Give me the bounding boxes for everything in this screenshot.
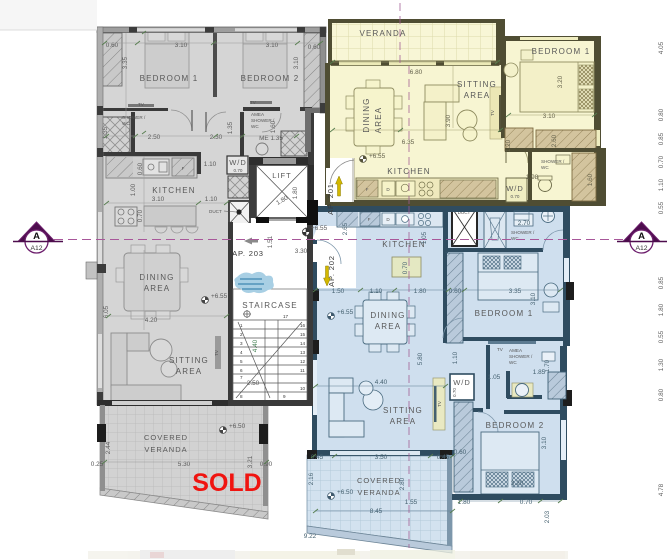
svg-text:1.80: 1.80: [414, 288, 427, 295]
svg-text:AREA: AREA: [374, 107, 383, 134]
svg-text:F: F: [368, 217, 371, 222]
svg-text:0.60: 0.60: [308, 44, 321, 51]
svg-text:TV: TV: [497, 347, 504, 352]
svg-text:KITCHEN: KITCHEN: [382, 240, 426, 249]
svg-text:W/D: W/D: [229, 158, 247, 167]
svg-text:AP. 203: AP. 203: [232, 249, 264, 258]
svg-text:3.10: 3.10: [530, 292, 537, 305]
svg-text:9: 9: [283, 394, 286, 399]
svg-text:WC: WC: [541, 165, 549, 170]
svg-text:3.10: 3.10: [293, 56, 300, 69]
svg-text:12: 12: [300, 359, 306, 364]
svg-text:3.50: 3.50: [375, 454, 388, 461]
svg-text:WC: WC: [511, 236, 519, 241]
svg-text:3.35: 3.35: [509, 288, 522, 295]
svg-text:+6.55: +6.55: [337, 309, 354, 316]
svg-text:BEDROOM 1: BEDROOM 1: [140, 74, 199, 83]
svg-text:STAIRCASE: STAIRCASE: [242, 301, 298, 310]
svg-text:3.20: 3.20: [511, 480, 524, 487]
svg-text:W/D: W/D: [453, 378, 471, 387]
svg-text:0.25: 0.25: [91, 461, 104, 468]
svg-text:DINING: DINING: [362, 97, 371, 132]
svg-text:LIFT: LIFT: [272, 171, 291, 180]
svg-text:11: 11: [300, 368, 305, 373]
svg-text:WC: WC: [251, 124, 259, 129]
svg-text:DINING: DINING: [139, 273, 174, 282]
svg-text:2.65: 2.65: [342, 222, 349, 235]
svg-text:+6.55: +6.55: [211, 293, 228, 300]
svg-text:0.70: 0.70: [402, 261, 409, 274]
svg-text:AMEA: AMEA: [251, 112, 265, 117]
svg-text:1.80: 1.80: [658, 303, 665, 316]
svg-text:W/D: W/D: [506, 184, 524, 193]
svg-text:0.80: 0.80: [658, 108, 665, 121]
svg-text:2.70: 2.70: [518, 220, 531, 227]
svg-text:+6.55: +6.55: [369, 153, 386, 160]
svg-text:TV: TV: [214, 349, 219, 356]
svg-text:2.03: 2.03: [544, 510, 551, 523]
svg-text:8.45: 8.45: [370, 508, 383, 515]
svg-text:BEDROOM 1: BEDROOM 1: [475, 309, 534, 318]
svg-text:4.20: 4.20: [145, 317, 158, 324]
svg-text:1.50: 1.50: [332, 288, 345, 295]
svg-text:0.55: 0.55: [658, 330, 665, 343]
svg-text:3.10: 3.10: [541, 436, 548, 449]
svg-text:BEDROOM 2: BEDROOM 2: [241, 74, 300, 83]
svg-text:7: 7: [240, 375, 243, 380]
svg-text:1.05: 1.05: [488, 374, 501, 381]
svg-text:KITCHEN: KITCHEN: [152, 186, 196, 195]
svg-text:WC: WC: [509, 360, 517, 365]
svg-text:6.35: 6.35: [402, 139, 415, 146]
svg-text:0.85: 0.85: [658, 132, 665, 145]
svg-text:SHOWER /: SHOWER /: [541, 159, 565, 164]
svg-text:SITTING: SITTING: [169, 356, 209, 365]
svg-text:2.80: 2.80: [399, 477, 406, 490]
svg-text:3.10: 3.10: [152, 196, 165, 203]
svg-text:0.70: 0.70: [658, 155, 665, 168]
svg-text:SOLD: SOLD: [192, 469, 261, 497]
svg-text:6.80: 6.80: [410, 69, 423, 76]
svg-text:13: 13: [300, 350, 306, 355]
svg-text:10: 10: [300, 386, 306, 391]
svg-text:+6.50: +6.50: [229, 423, 246, 430]
svg-text:A12: A12: [635, 245, 647, 252]
svg-text:2.60: 2.60: [551, 134, 558, 147]
svg-text:0.60: 0.60: [454, 449, 467, 456]
svg-text:0.70: 0.70: [520, 499, 533, 506]
svg-text:1.35: 1.35: [227, 121, 234, 134]
svg-text:1.10: 1.10: [370, 288, 383, 295]
svg-text:1.80: 1.80: [292, 186, 299, 199]
svg-text:AMEA: AMEA: [509, 348, 523, 353]
svg-text:DUCT: DUCT: [209, 209, 222, 214]
svg-text:5.80: 5.80: [417, 352, 424, 365]
svg-text:COVERED: COVERED: [357, 476, 401, 485]
svg-text:1.00: 1.00: [130, 183, 137, 196]
svg-text:AREA: AREA: [390, 417, 417, 426]
svg-text:3.10: 3.10: [543, 113, 556, 120]
svg-text:1.70: 1.70: [544, 359, 551, 372]
svg-text:1.60: 1.60: [270, 120, 277, 133]
svg-text:A12: A12: [30, 245, 42, 252]
svg-text:8: 8: [240, 394, 243, 399]
svg-text:0.70: 0.70: [511, 194, 520, 199]
svg-text:1.98: 1.98: [526, 174, 539, 181]
svg-text:4.78: 4.78: [658, 483, 665, 496]
svg-text:TV: TV: [490, 109, 495, 116]
svg-text:4: 4: [240, 350, 243, 355]
svg-text:15: 15: [300, 332, 306, 337]
svg-text:+6.55: +6.55: [311, 225, 328, 232]
svg-text:0.55: 0.55: [658, 201, 665, 214]
svg-text:AP. 201: AP. 201: [326, 183, 335, 215]
svg-text:2.44: 2.44: [105, 441, 112, 454]
svg-text:F: F: [182, 166, 185, 171]
svg-text:2.16: 2.16: [308, 472, 315, 485]
svg-text:AREA: AREA: [464, 91, 491, 100]
svg-text:AREA: AREA: [375, 322, 402, 331]
svg-text:VERANDA: VERANDA: [359, 29, 406, 38]
svg-text:0.45: 0.45: [311, 454, 324, 461]
svg-text:0.70: 0.70: [137, 209, 144, 222]
svg-text:1.20: 1.20: [505, 139, 512, 152]
svg-text:AREA: AREA: [176, 367, 203, 376]
svg-text:BEDROOM 1: BEDROOM 1: [532, 47, 591, 56]
svg-text:5: 5: [240, 359, 243, 364]
svg-text:AREA: AREA: [144, 284, 171, 293]
svg-text:+6.50: +6.50: [337, 489, 354, 496]
svg-text:2.50: 2.50: [148, 134, 161, 141]
svg-text:4.40: 4.40: [375, 379, 388, 386]
svg-text:0.85: 0.85: [658, 276, 665, 289]
svg-text:3.35: 3.35: [122, 56, 129, 69]
svg-text:3.30: 3.30: [295, 248, 308, 255]
svg-text:SHOWER /: SHOWER /: [511, 230, 535, 235]
svg-text:0.60: 0.60: [449, 288, 462, 295]
svg-text:6: 6: [240, 368, 243, 373]
svg-text:1.60: 1.60: [587, 173, 594, 186]
svg-text:COVERED: COVERED: [144, 433, 188, 442]
svg-text:2: 2: [240, 332, 243, 337]
svg-text:3.90: 3.90: [445, 114, 452, 127]
svg-text:1.10: 1.10: [205, 196, 218, 203]
svg-text:4.05: 4.05: [658, 41, 665, 54]
svg-text:0.80: 0.80: [658, 388, 665, 401]
svg-text:17: 17: [283, 314, 289, 319]
svg-text:1.05: 1.05: [421, 231, 428, 244]
svg-text:1.51: 1.51: [267, 235, 274, 248]
svg-text:A: A: [33, 231, 40, 242]
svg-text:0.60: 0.60: [137, 162, 144, 175]
svg-text:VERANDA: VERANDA: [144, 445, 187, 454]
svg-text:SHOWER /: SHOWER /: [509, 354, 533, 359]
svg-text:3: 3: [240, 341, 243, 346]
svg-text:0.70: 0.70: [234, 168, 243, 173]
svg-text:TV: TV: [250, 100, 257, 105]
svg-text:6.05: 6.05: [103, 305, 110, 318]
svg-text:TV: TV: [437, 400, 442, 407]
svg-text:A: A: [638, 231, 645, 242]
svg-text:SHOWER /: SHOWER /: [122, 115, 146, 120]
svg-text:16: 16: [300, 323, 306, 328]
svg-text:SITTING: SITTING: [457, 80, 497, 89]
svg-text:1: 1: [240, 323, 243, 328]
svg-text:TV: TV: [138, 102, 145, 107]
svg-text:1.55: 1.55: [405, 499, 418, 506]
svg-text:4.40: 4.40: [252, 339, 259, 352]
svg-text:14: 14: [300, 341, 306, 346]
svg-text:3.20: 3.20: [557, 75, 564, 88]
svg-text:1.10: 1.10: [452, 351, 459, 364]
svg-text:2.50: 2.50: [247, 380, 260, 387]
svg-text:SITTING: SITTING: [383, 406, 423, 415]
svg-text:1.10: 1.10: [204, 161, 217, 168]
svg-text:BEDROOM 2: BEDROOM 2: [486, 421, 545, 430]
svg-text:1.30: 1.30: [658, 358, 665, 371]
svg-text:9.22: 9.22: [304, 533, 317, 540]
svg-text:0.70: 0.70: [452, 388, 457, 397]
svg-text:1.10: 1.10: [658, 178, 665, 191]
svg-text:0.45: 0.45: [437, 454, 450, 461]
svg-text:1.80: 1.80: [458, 499, 471, 506]
svg-text:VERANDA: VERANDA: [357, 488, 400, 497]
svg-text:DINING: DINING: [370, 311, 405, 320]
svg-text:F: F: [366, 187, 369, 192]
